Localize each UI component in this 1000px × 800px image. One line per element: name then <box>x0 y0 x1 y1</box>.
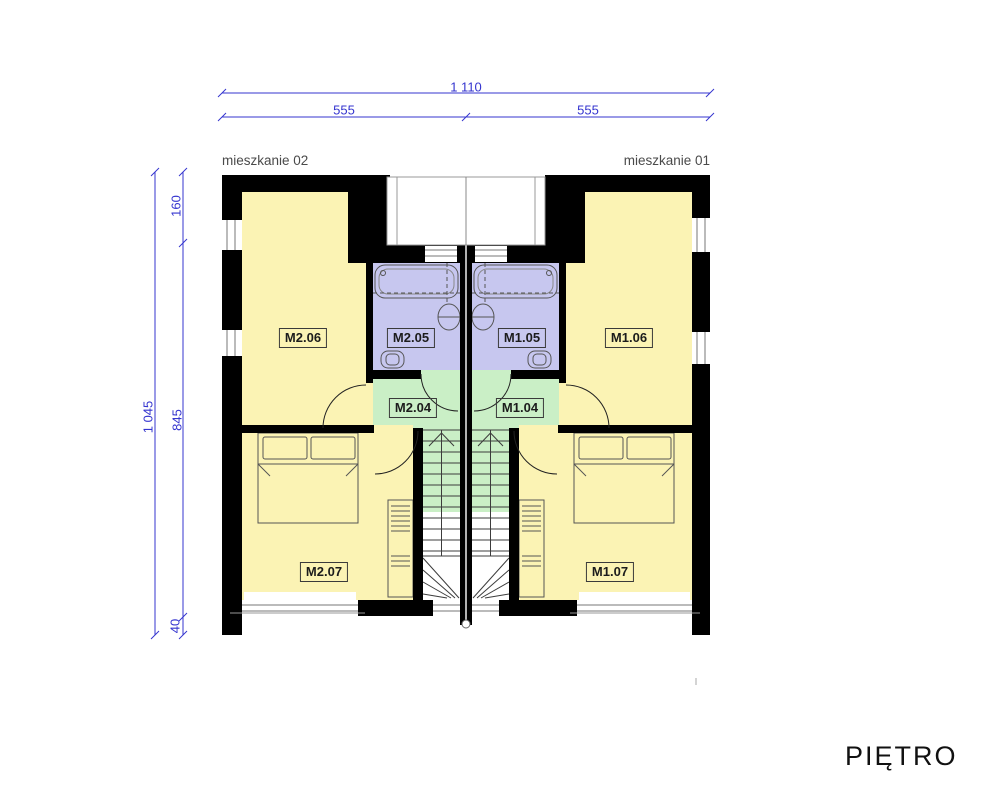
dim-side-upper: 160 <box>169 195 184 217</box>
room-label-m207: M2.07 <box>300 562 348 582</box>
dim-top-right: 555 <box>577 103 599 118</box>
dim-side-lower: 40 <box>168 619 183 633</box>
dim-top-left: 555 <box>333 103 355 118</box>
page-title: PIĘTRO <box>845 741 958 772</box>
room-label-m106: M1.06 <box>605 328 653 348</box>
dim-top-total: 1 110 <box>450 80 482 95</box>
party-wall-gap <box>465 245 466 625</box>
room-label-m104: M1.04 <box>496 398 544 418</box>
terrace <box>387 177 545 245</box>
dim-side-total: 1 045 <box>141 401 156 434</box>
apartment-label-01: mieszkanie 01 <box>624 153 710 168</box>
drain-symbol <box>462 620 470 628</box>
room-label-m107: M1.07 <box>586 562 634 582</box>
room-label-m105: M1.05 <box>498 328 546 348</box>
room-label-m206: M2.06 <box>279 328 327 348</box>
floor-plan-page: { "title": "PIĘTRO", "apartment_labels":… <box>0 0 1000 800</box>
apartment-label-02: mieszkanie 02 <box>222 153 308 168</box>
room-label-m204: M2.04 <box>389 398 437 418</box>
room-label-m205: M2.05 <box>387 328 435 348</box>
dim-side-middle: 845 <box>170 409 185 431</box>
